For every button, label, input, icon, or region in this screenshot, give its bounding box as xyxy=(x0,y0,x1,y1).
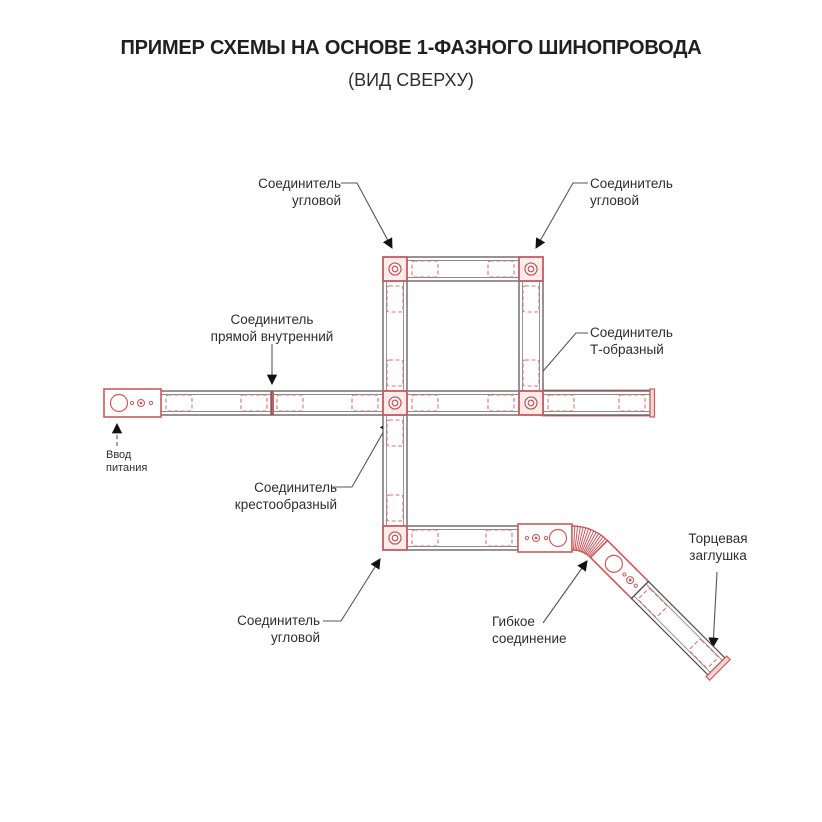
leader-corner-bottom xyxy=(323,559,380,621)
track-segment-mid-4 xyxy=(542,389,655,417)
corner-connector-top-left-icon xyxy=(383,257,407,281)
label-flexible-connection: Гибкое соединение xyxy=(492,614,567,647)
label-straight-internal-connector: Соединитель прямой внутренний xyxy=(152,312,392,345)
label-tee-connector: Соединитель Т-образный xyxy=(590,325,673,358)
end-cap-right-icon xyxy=(650,389,655,417)
corner-connector-top-right-icon xyxy=(519,257,543,281)
label-corner-connector-top-right: Соединитель угловой xyxy=(590,176,673,209)
track-segment-mid-2 xyxy=(272,391,383,415)
tee-connector-icon xyxy=(519,391,543,415)
track-segment-mid-1 xyxy=(161,391,272,415)
label-end-cap: Торцевая заглушка xyxy=(658,531,778,564)
track-segment-diagonal xyxy=(632,582,725,675)
track-segment-right xyxy=(519,281,543,391)
flexible-feed-block-icon xyxy=(518,524,572,552)
track-segment-bottom xyxy=(407,526,518,550)
cross-connector-icon xyxy=(383,391,407,415)
power-input-block-icon xyxy=(104,389,161,417)
label-corner-connector-bottom: Соединитель угловой xyxy=(237,613,320,646)
track-segment-mid-3 xyxy=(407,391,519,415)
leader-cross xyxy=(333,422,389,487)
label-power-input: Ввод питания xyxy=(106,449,147,475)
label-corner-connector-top-left: Соединитель угловой xyxy=(258,176,341,209)
label-cross-connector: Соединитель крестообразный xyxy=(235,480,337,513)
corner-connector-bottom-icon xyxy=(383,526,407,550)
track-segment-top xyxy=(407,257,519,281)
leader-end-cap xyxy=(713,572,717,647)
busbar-diagram xyxy=(0,0,822,822)
leader-corner-top-left xyxy=(341,183,392,248)
track-segment-left-lower xyxy=(383,415,407,526)
leader-corner-top-right xyxy=(536,183,588,248)
